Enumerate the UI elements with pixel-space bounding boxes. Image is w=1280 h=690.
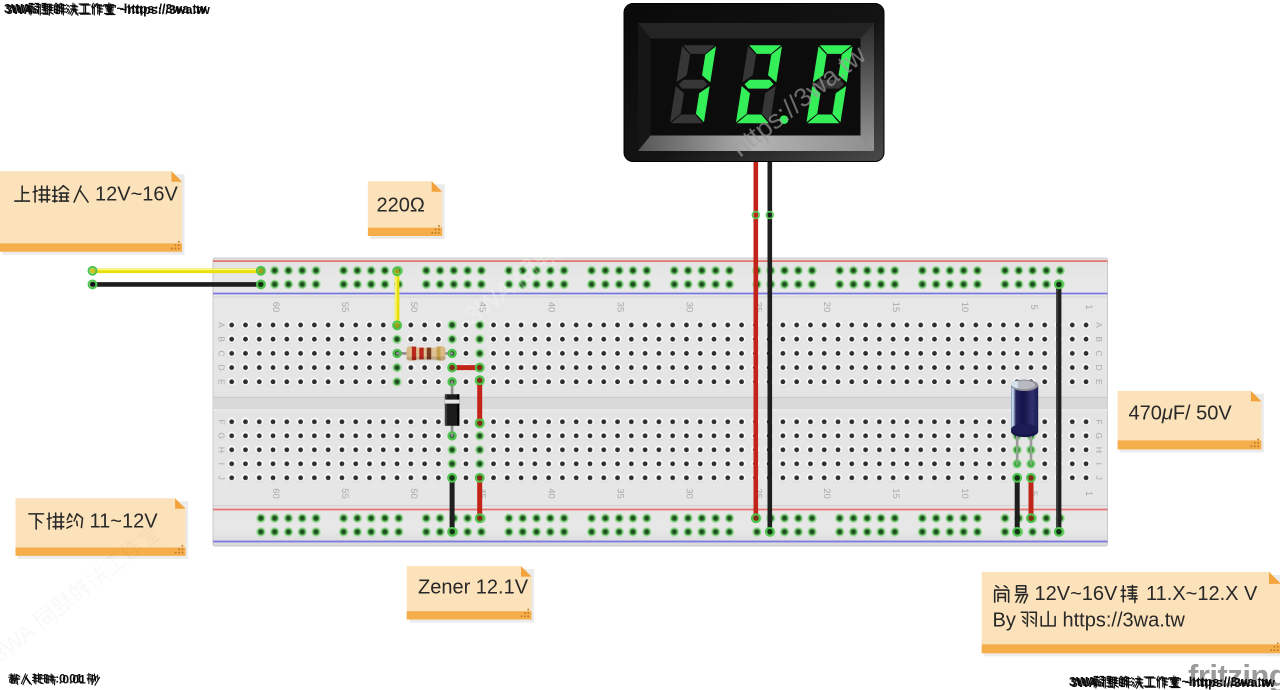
svg-text:35: 35 — [615, 488, 626, 499]
svg-text:15: 15 — [890, 302, 901, 313]
svg-text:30: 30 — [683, 488, 694, 499]
svg-text:50: 50 — [408, 488, 419, 499]
svg-text:12V~16V: 12V~16V — [95, 183, 179, 205]
svg-text:35: 35 — [615, 302, 626, 313]
svg-text:20: 20 — [821, 302, 832, 313]
svg-text:C: C — [216, 350, 226, 356]
svg-text:220Ω: 220Ω — [377, 195, 425, 217]
svg-text:15: 15 — [890, 488, 901, 499]
svg-text:20: 20 — [821, 488, 832, 499]
svg-text:B: B — [1094, 336, 1104, 342]
svg-text:10: 10 — [959, 488, 970, 499]
svg-text:~https://3wa.tw: ~https://3wa.tw — [120, 3, 210, 17]
svg-text:470μF/ 50V: 470μF/ 50V — [1129, 403, 1233, 425]
svg-text:D: D — [1094, 365, 1104, 371]
svg-text:60: 60 — [270, 302, 281, 313]
svg-text:60: 60 — [270, 488, 281, 499]
svg-text:I: I — [216, 463, 226, 465]
svg-text:A: A — [216, 322, 226, 328]
svg-text:J: J — [216, 476, 226, 480]
svg-text:G: G — [216, 432, 226, 439]
svg-text:30: 30 — [683, 302, 694, 313]
svg-text:D: D — [216, 365, 226, 371]
svg-text:F: F — [1094, 419, 1104, 424]
svg-text:3WA: 3WA — [1071, 676, 1098, 690]
svg-text:J: J — [1094, 476, 1104, 480]
svg-text:40: 40 — [546, 488, 557, 499]
svg-text:5: 5 — [1028, 304, 1039, 309]
svg-text:Zener 12.1V: Zener 12.1V — [418, 577, 529, 599]
svg-text::0.01: :0.01 — [58, 673, 86, 687]
svg-text:40: 40 — [546, 302, 557, 313]
svg-text:1: 1 — [1083, 304, 1094, 309]
svg-text:H: H — [1094, 447, 1104, 453]
svg-text:F: F — [216, 419, 226, 424]
svg-text:E: E — [1094, 379, 1104, 385]
svg-text:11.X~12.X V: 11.X~12.X V — [1146, 583, 1258, 605]
svg-text:https://3wa.tw: https://3wa.tw — [1063, 609, 1186, 631]
svg-text:H: H — [216, 447, 226, 453]
svg-text:A: A — [1094, 322, 1104, 328]
svg-text:B: B — [216, 336, 226, 342]
svg-text:55: 55 — [339, 302, 350, 313]
svg-text:C: C — [1094, 350, 1104, 356]
svg-text:3WA: 3WA — [6, 3, 33, 17]
svg-text:50: 50 — [408, 302, 419, 313]
svg-text:E: E — [216, 379, 226, 385]
svg-text:10: 10 — [959, 302, 970, 313]
svg-text:1: 1 — [1083, 491, 1094, 496]
svg-text:12V~16V: 12V~16V — [1035, 583, 1119, 605]
svg-text:By: By — [993, 609, 1016, 631]
svg-text:G: G — [1094, 432, 1104, 439]
svg-text:~https://3wa.tw: ~https://3wa.tw — [1185, 676, 1275, 690]
svg-text:I: I — [1094, 463, 1104, 465]
svg-text:3WA: 3WA — [0, 618, 40, 667]
svg-text:55: 55 — [339, 488, 350, 499]
